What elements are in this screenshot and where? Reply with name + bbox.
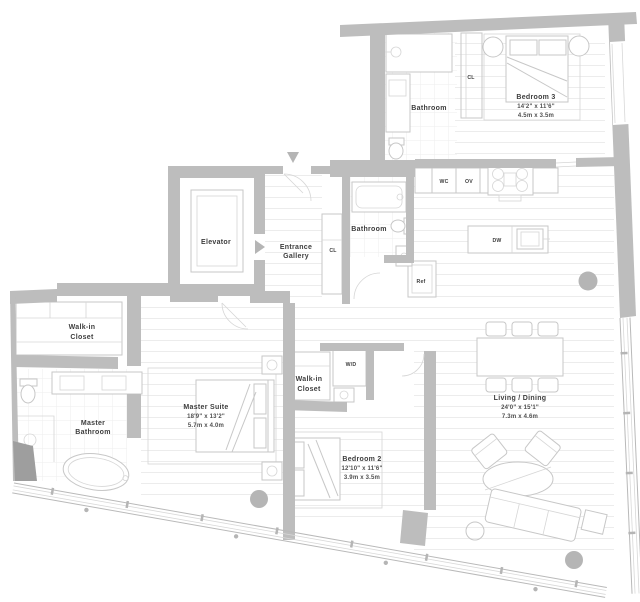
label-bedroom3-dimft: 14'2" x 11'6" — [517, 104, 555, 110]
toilet-bowl-mid — [391, 220, 405, 232]
label-master-suite-dimm: 5.7m x 4.0m — [188, 423, 224, 429]
label-wic2-line1: Walk-in — [296, 376, 323, 383]
wall-suite-top-b — [250, 291, 290, 303]
mullion-8 — [574, 580, 578, 587]
bedroom3-door-line1 — [556, 162, 576, 163]
label-gallery-line1: Entrance — [280, 244, 312, 251]
dining-chair-3 — [538, 322, 558, 336]
window-pier — [400, 510, 428, 546]
wall-master-bath-right — [127, 394, 141, 438]
bathroom-mid-door-swing — [354, 273, 380, 299]
wall-wic2-bottom — [283, 400, 347, 412]
dining-chair-5 — [512, 378, 532, 392]
double-vanity — [52, 372, 142, 394]
label-dw: DW — [492, 238, 501, 244]
label-wic1-line2: Closet — [70, 334, 94, 341]
label-bedroom2-name: Bedroom 2 — [342, 456, 381, 463]
kitchen-counter — [415, 168, 558, 193]
laundry-sink-basin — [340, 391, 348, 399]
bedroom2-bed — [290, 438, 340, 500]
label-living-dimft: 24'0" x 15'1" — [501, 405, 539, 411]
column-living — [565, 551, 583, 569]
label-ref: Ref — [417, 279, 426, 285]
label-bedroom2-dimft: 12'10" x 11'6" — [341, 466, 382, 472]
label-ov: OV — [465, 179, 473, 185]
bedroom3-nightstand-left — [483, 37, 503, 57]
label-master-suite-name: Master Suite — [183, 404, 228, 411]
glass-dot-2 — [234, 534, 239, 539]
hall-floor — [295, 304, 424, 348]
label-master-bath-line1: Master — [81, 420, 105, 427]
label-master-bath-line2: Bathroom — [75, 429, 110, 436]
wall-kitchen-top — [415, 159, 556, 168]
dining-chair-6 — [538, 378, 558, 392]
entry-arrow-icon — [287, 152, 299, 163]
master-nightstand-bottom — [262, 462, 282, 480]
wall-wd-right — [366, 343, 374, 400]
laundry-sink — [334, 388, 354, 402]
label-gallery-line2: Gallery — [283, 253, 309, 260]
sofa-side-table — [581, 510, 607, 534]
east-curtain-wall — [619, 318, 640, 594]
mullion-6 — [425, 554, 429, 561]
wall-bath-mid-bottom — [384, 255, 414, 263]
glass-dot-1 — [84, 507, 89, 512]
wall-bath-top-left — [370, 25, 385, 166]
label-master-suite-dimft: 18'9" x 13'2" — [187, 414, 225, 420]
wall-suite-right — [283, 303, 295, 540]
master-toilet-bowl — [21, 385, 35, 403]
label-cl-top: CL — [467, 75, 475, 81]
column-east — [579, 272, 598, 291]
mullion-4 — [275, 527, 279, 534]
mullion-3 — [200, 514, 204, 521]
bedroom3-window-gap — [610, 41, 629, 125]
glass-dot-3 — [383, 560, 388, 565]
label-bedroom3-name: Bedroom 3 — [516, 94, 555, 101]
wall-wic1-right — [127, 296, 141, 366]
bedroom3-door-line2 — [556, 166, 576, 167]
label-elevator: Elevator — [201, 239, 231, 246]
label-wd: W/D — [346, 362, 357, 368]
wall-wic1-bottom — [14, 355, 118, 369]
label-bedroom2-dimm: 3.9m x 3.5m — [344, 475, 380, 481]
dining-chair-4 — [486, 378, 506, 392]
gallery-closet — [322, 214, 342, 294]
shower-tub — [386, 34, 452, 72]
mullion-e2 — [623, 412, 630, 415]
glass-dot-4 — [533, 587, 538, 592]
mullion-5 — [350, 540, 354, 547]
label-bathroom-top: Bathroom — [411, 105, 446, 112]
wall-kitchen-top-right — [576, 157, 622, 167]
wall-wing-top — [57, 283, 170, 296]
label-living-dimm: 7.3m x 4.6m — [502, 414, 538, 420]
dining-table — [477, 338, 563, 376]
label-living-name: Living / Dining — [494, 395, 547, 402]
wall-bath-mid-right — [406, 177, 414, 257]
bedroom3-nightstand-right — [569, 36, 589, 56]
wall-closet-right — [342, 174, 350, 304]
wall-suite-top-a — [170, 290, 218, 302]
label-wic2-line2: Closet — [297, 386, 321, 393]
label-wc: WC — [439, 179, 448, 185]
wall-gallery-top-right — [311, 166, 342, 174]
toilet-bowl — [389, 143, 403, 159]
wall-wic2-top — [320, 343, 404, 351]
wic2-wd — [285, 346, 366, 402]
floor-plan-page: Bathroom CL Bedroom 3 14'2" x 11'6" 4.5m… — [0, 0, 640, 602]
dining-chair-2 — [512, 322, 532, 336]
coat-closet — [322, 214, 342, 294]
gallery-floor — [265, 175, 322, 301]
floor-plan-canvas: Bathroom CL Bedroom 3 14'2" x 11'6" 4.5m… — [0, 0, 640, 602]
mullion-1 — [51, 488, 55, 495]
mullion-e4 — [628, 532, 635, 535]
label-bathroom-mid: Bathroom — [351, 226, 386, 233]
mullion-e3 — [626, 472, 633, 475]
column-bedroom2 — [250, 490, 268, 508]
master-nightstand-top — [262, 356, 282, 374]
mullion-2 — [125, 501, 129, 508]
wall-gallery-top-left — [265, 166, 283, 174]
mullion-e1 — [620, 352, 627, 355]
label-cl-hall: CL — [329, 248, 337, 254]
label-bedroom3-dimm: 4.5m x 3.5m — [518, 113, 554, 119]
mullion-7 — [500, 567, 504, 574]
wall-bedroom2-right — [424, 351, 436, 510]
wall-wing-top-left — [10, 289, 57, 304]
dining-chair-1 — [486, 322, 506, 336]
label-wic1-line1: Walk-in — [69, 324, 96, 331]
